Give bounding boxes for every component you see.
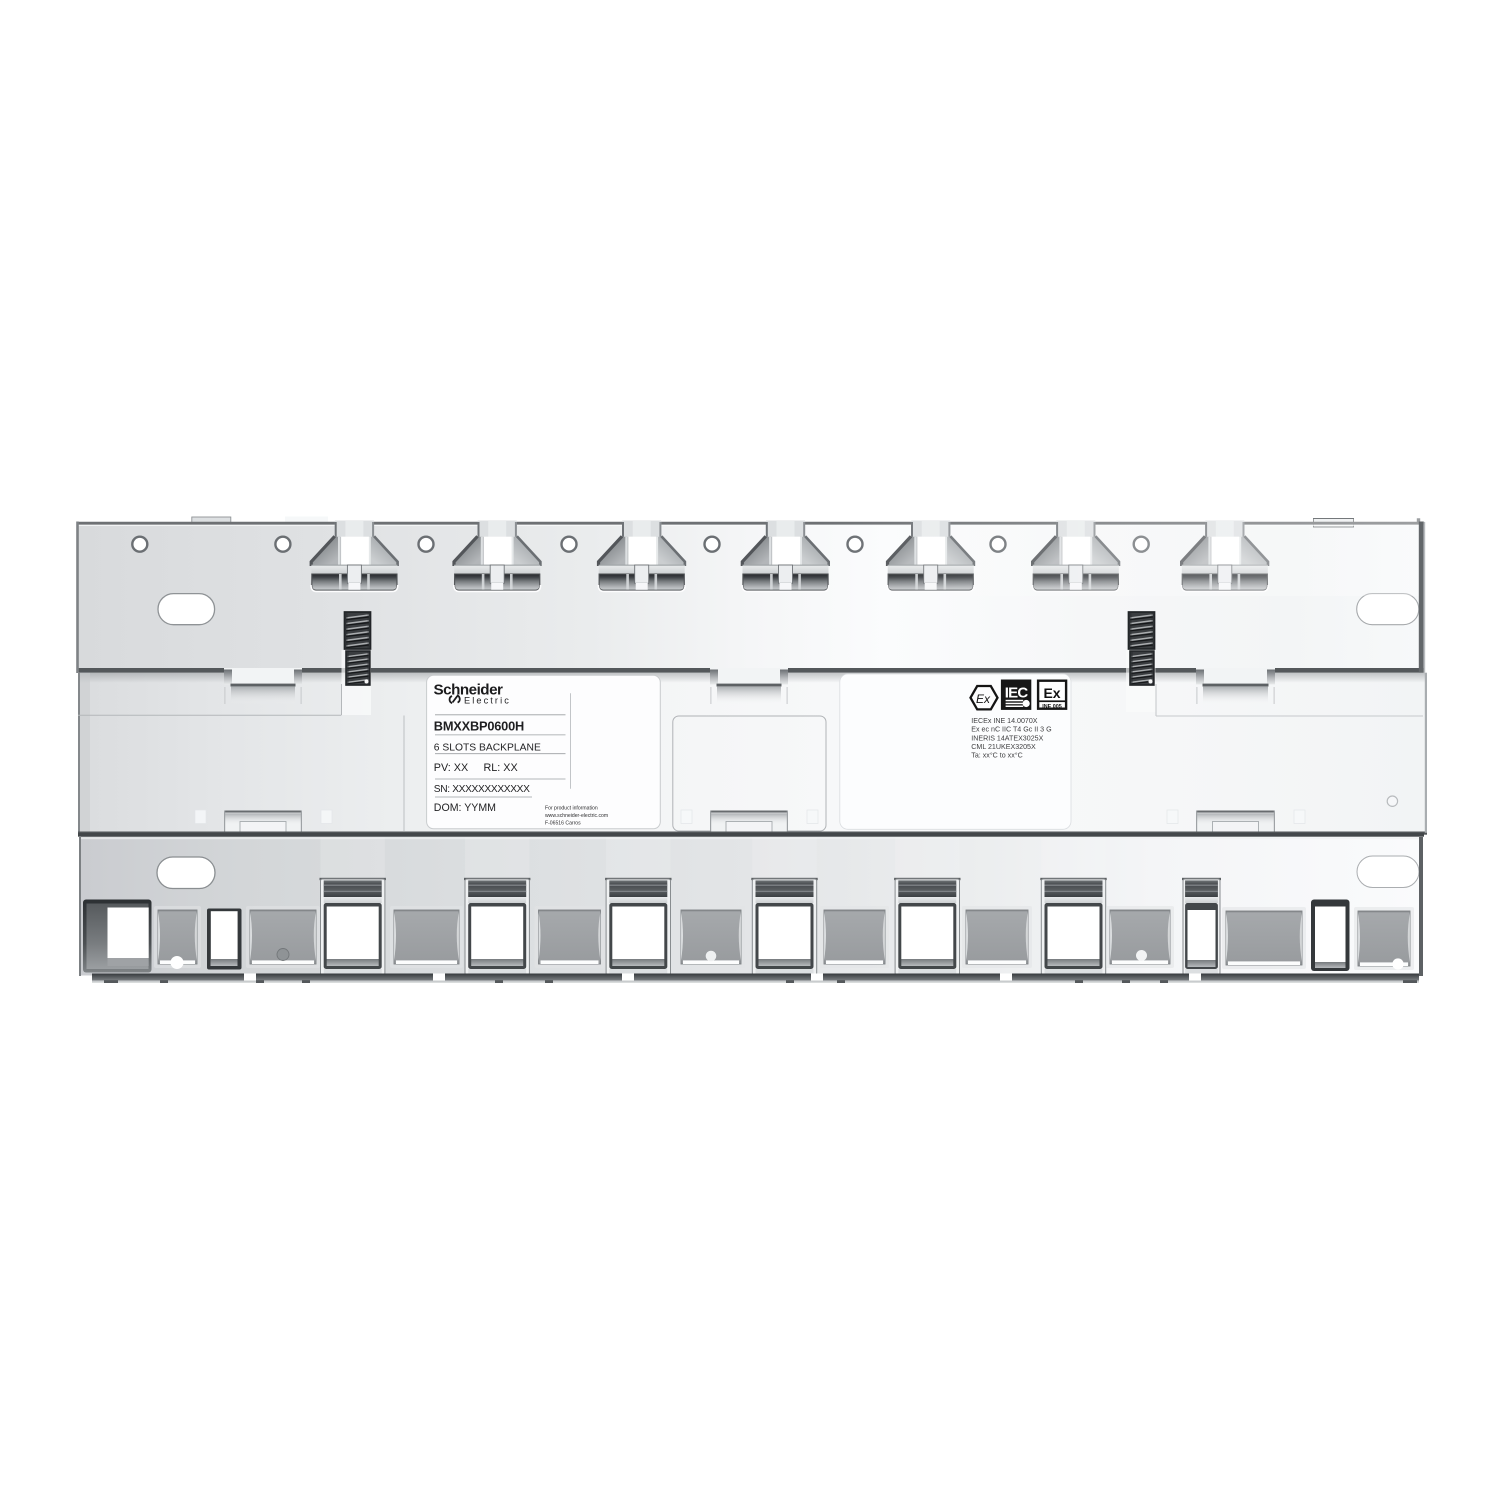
svg-text:www.schneider-electric.com: www.schneider-electric.com <box>545 813 608 819</box>
svg-text:Electric: Electric <box>464 695 511 705</box>
svg-text:PV: XX: PV: XX <box>434 762 468 774</box>
svg-text:RL: XX: RL: XX <box>484 762 518 774</box>
svg-text:For product information: For product information <box>545 805 598 811</box>
svg-text:F-06516 Carros: F-06516 Carros <box>545 821 581 827</box>
svg-text:6 SLOTS BACKPLANE: 6 SLOTS BACKPLANE <box>434 743 541 754</box>
svg-text:DOM: YYMM: DOM: YYMM <box>434 802 496 814</box>
svg-text:IECEx INE 14.0070X: IECEx INE 14.0070X <box>971 717 1038 725</box>
svg-text:SN: XXXXXXXXXXXX: SN: XXXXXXXXXXXX <box>434 784 530 795</box>
svg-text:INERIS 14ATEX3025X: INERIS 14ATEX3025X <box>971 734 1043 742</box>
svg-text:IEC: IEC <box>1005 685 1029 702</box>
svg-text:BMXXBP0600H: BMXXBP0600H <box>434 718 524 733</box>
svg-text:Ex: Ex <box>1043 685 1060 701</box>
svg-text:INE 005: INE 005 <box>1042 704 1061 710</box>
svg-text:CML 21UKEX3205X: CML 21UKEX3205X <box>971 743 1036 751</box>
svg-text:Ex ec nC IIC T4 Gc II 3 G: Ex ec nC IIC T4 Gc II 3 G <box>971 726 1051 734</box>
svg-text:Ex: Ex <box>976 692 991 706</box>
svg-text:Ta: xx°C to xx°C: Ta: xx°C to xx°C <box>971 752 1022 760</box>
